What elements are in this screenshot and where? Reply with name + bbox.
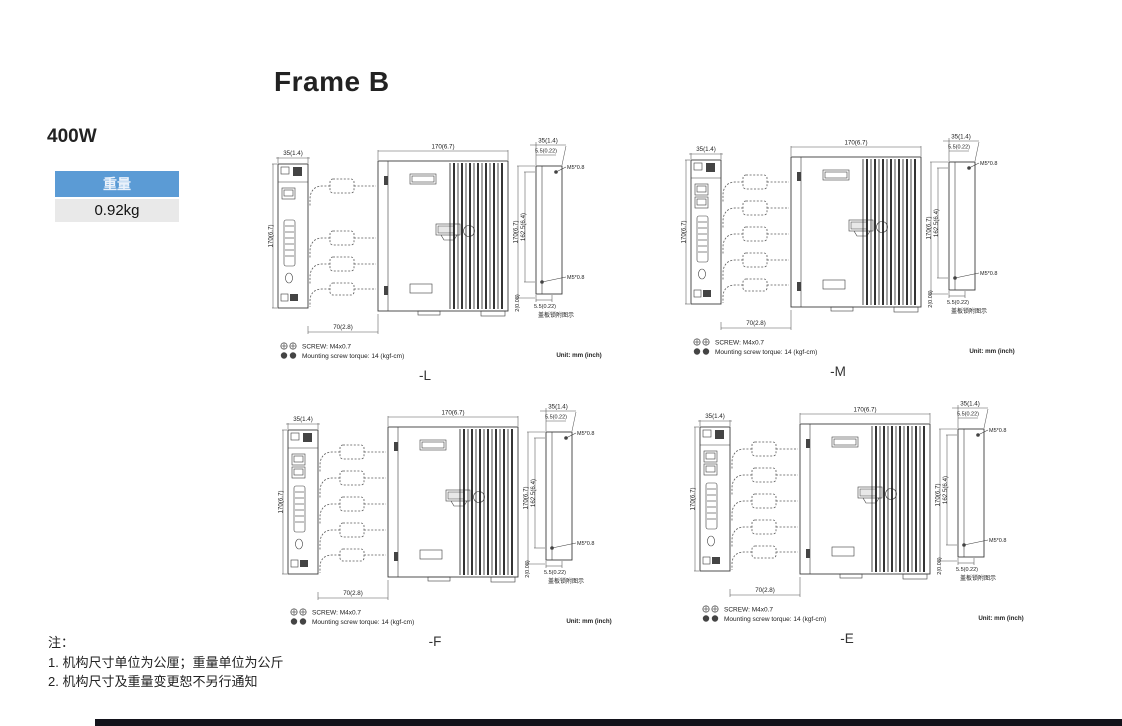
display-panel <box>858 487 897 503</box>
rear-height-label: 170(6.7) <box>935 483 942 506</box>
rear-bottom-offset-label: 5.5(0.22) <box>544 570 566 576</box>
side-depth-dimension: 170(6.7) <box>388 410 518 427</box>
front-height-dimension: 170(6.7) <box>690 427 699 571</box>
rear-height-dimension: 170(6.7) 162.5(6.4) <box>935 429 958 561</box>
note-2: 2. 机构尺寸及重量变更恕不另行通知 <box>48 673 283 692</box>
side-view <box>791 157 921 312</box>
cable-hook <box>320 471 386 499</box>
front-view <box>278 164 308 308</box>
front-view <box>288 430 318 574</box>
front-height-label: 170(6.7) <box>278 490 285 513</box>
cable-hook <box>310 283 376 307</box>
front-width-dimension: 35(1.4) <box>698 413 732 426</box>
screw-head-filled-icon <box>281 352 296 358</box>
drawing-panel-l: 35(1.4) 170(6.7) <box>268 136 618 386</box>
screw-head-icon <box>694 339 709 345</box>
variant-label: -F <box>429 634 442 649</box>
rear-height-dimension: 170(6.7) 162.5(6.4) <box>513 166 536 298</box>
cable-hook <box>320 523 386 551</box>
mounting-pitch-label: 162.5(6.4) <box>942 476 949 504</box>
side-depth-dimension: 170(6.7) <box>378 144 508 161</box>
cable-hook <box>723 201 789 229</box>
side-depth-label: 170(6.7) <box>431 144 454 151</box>
cable-clearance-label: 70(2.8) <box>343 590 363 597</box>
weight-table: 重量 0.92kg <box>55 171 179 222</box>
front-height-dimension: 170(6.7) <box>278 430 287 574</box>
side-depth-dimension: 170(6.7) <box>791 140 921 157</box>
screw-head-icon <box>291 609 306 615</box>
mounting-screw-label-bottom: M5*0.8 <box>577 541 594 547</box>
rear-bottom-gap-label: 2(0.08) <box>928 290 934 308</box>
front-height-dimension: 170(6.7) <box>681 160 690 304</box>
display-panel <box>849 220 888 236</box>
screw-head-filled-icon <box>291 618 306 624</box>
rear-view-caption: 盖板锁附图示 <box>960 574 996 582</box>
screw-head-icon <box>703 606 718 612</box>
rear-view-caption: 盖板锁附图示 <box>951 307 987 315</box>
rear-top-offset-label: 5.5(0.22) <box>545 415 567 421</box>
mounting-pitch-label: 162.5(6.4) <box>520 213 527 241</box>
front-height-label: 170(6.7) <box>681 220 688 243</box>
rear-top-offset-label: 5.5(0.22) <box>535 149 557 155</box>
mounting-pitch-label: 162.5(6.4) <box>933 209 940 237</box>
side-depth-dimension: 170(6.7) <box>800 407 930 424</box>
rear-height-label: 170(6.7) <box>926 216 933 239</box>
cable-connectors <box>723 175 789 303</box>
heatsink-fins <box>863 159 915 305</box>
mounting-screw-label-top: M5*0.8 <box>567 165 584 171</box>
cable-hook <box>723 279 789 303</box>
front-width-dimension: 35(1.4) <box>689 146 723 159</box>
dimension-drawing: 35(1.4) 170(6.7) <box>268 136 618 386</box>
unit-label: Unit: mm (inch) <box>969 348 1014 355</box>
display-panel <box>446 490 485 506</box>
cable-hook <box>320 549 386 573</box>
rear-height-dimension: 170(6.7) 162.5(6.4) <box>926 162 949 294</box>
screw-spec-label: SCREW: M4x0.7 <box>724 607 773 614</box>
mounting-screw-label-bottom: M5*0.8 <box>980 271 997 277</box>
rear-view: M5*0.8 M5*0.8 <box>958 428 1006 557</box>
display-panel <box>436 224 475 240</box>
rear-top-offset-label: 5.5(0.22) <box>957 412 979 418</box>
document-page: Frame B 400W 重量 0.92kg 35(1.4) 170(6.7) <box>0 0 1122 726</box>
unit-label: Unit: mm (inch) <box>978 615 1023 622</box>
cable-connectors <box>320 445 386 573</box>
cable-clearance-label: 70(2.8) <box>746 320 766 327</box>
mounting-screw-label-bottom: M5*0.8 <box>989 538 1006 544</box>
side-depth-label: 170(6.7) <box>844 140 867 147</box>
drawing-panel-e: 35(1.4) 170(6.7) <box>690 399 1040 649</box>
front-width-dimension: 35(1.4) <box>276 150 310 163</box>
weight-table-header: 重量 <box>55 171 179 199</box>
torque-spec-label: Mounting screw torque: 14 (kgf-cm) <box>715 349 817 356</box>
cable-hook <box>732 546 798 570</box>
drawing-panel-f: 35(1.4) 170(6.7) <box>278 402 628 652</box>
side-view <box>388 427 518 582</box>
cable-hook <box>310 257 376 285</box>
cable-hook <box>732 442 798 470</box>
unit-label: Unit: mm (inch) <box>566 618 611 625</box>
side-view <box>378 161 508 316</box>
front-width-dimension: 35(1.4) <box>286 416 320 429</box>
front-width-label: 35(1.4) <box>293 416 313 423</box>
screw-spec-label: SCREW: M4x0.7 <box>302 344 351 351</box>
cable-hook <box>723 253 789 281</box>
dimension-drawing: 35(1.4) 170(6.7) <box>681 132 1031 382</box>
side-depth-label: 170(6.7) <box>441 410 464 417</box>
cable-hook <box>310 179 376 207</box>
side-depth-label: 170(6.7) <box>853 407 876 414</box>
drawing-panel-m: 35(1.4) 170(6.7) <box>681 132 1031 382</box>
cable-clearance-label: 70(2.8) <box>333 324 353 331</box>
cable-clearance-label: 70(2.8) <box>755 587 775 594</box>
rear-view: M5*0.8 M5*0.8 <box>949 161 997 290</box>
heatsink-fins <box>450 163 502 309</box>
torque-spec-label: Mounting screw torque: 14 (kgf-cm) <box>302 353 404 360</box>
footnotes: 注： 1. 机构尺寸单位为公厘；重量单位为公斤 2. 机构尺寸及重量变更恕不另行… <box>48 634 283 692</box>
page-footer-bar <box>95 719 1122 726</box>
front-width-label: 35(1.4) <box>283 150 303 157</box>
cable-hook <box>320 497 386 525</box>
front-height-label: 170(6.7) <box>690 487 697 510</box>
mounting-screw-label-top: M5*0.8 <box>577 431 594 437</box>
rear-view: M5*0.8 M5*0.8 <box>536 165 584 294</box>
side-view <box>800 424 930 579</box>
front-width-label: 35(1.4) <box>705 413 725 420</box>
notes-label: 注： <box>48 634 283 653</box>
rear-view-caption: 盖板锁附图示 <box>548 577 584 585</box>
variant-label: -M <box>830 364 846 379</box>
rear-view-caption: 盖板锁附图示 <box>538 311 574 319</box>
rear-width-dimension: 35(1.4) 5.5(0.22) <box>943 134 979 162</box>
cable-clearance-dimension: 70(2.8) <box>308 314 378 334</box>
screw-head-filled-icon <box>703 615 718 621</box>
heatsink-fins <box>872 426 924 572</box>
screw-notes: SCREW: M4x0.7 Mounting screw torque: 14 … <box>694 339 817 356</box>
rear-width-label: 35(1.4) <box>951 134 971 141</box>
cable-connectors <box>310 179 376 307</box>
rear-width-dimension: 35(1.4) 5.5(0.22) <box>540 404 576 432</box>
cable-connectors <box>732 442 798 570</box>
rear-width-label: 35(1.4) <box>960 401 980 408</box>
cable-clearance-dimension: 70(2.8) <box>318 580 388 600</box>
cable-clearance-dimension: 70(2.8) <box>730 577 800 597</box>
power-rating: 400W <box>47 126 97 148</box>
weight-table-value: 0.92kg <box>55 199 179 222</box>
page-title: Frame B <box>274 66 390 98</box>
screw-spec-label: SCREW: M4x0.7 <box>312 610 361 617</box>
cable-hook <box>732 520 798 548</box>
unit-label: Unit: mm (inch) <box>556 352 601 359</box>
note-1: 1. 机构尺寸单位为公厘；重量单位为公斤 <box>48 654 283 673</box>
cable-hook <box>310 231 376 259</box>
variant-label: -L <box>419 368 431 383</box>
rear-bottom-offset-label: 5.5(0.22) <box>956 567 978 573</box>
cable-hook <box>320 445 386 473</box>
mounting-screw-label-top: M5*0.8 <box>989 428 1006 434</box>
front-width-label: 35(1.4) <box>696 146 716 153</box>
rear-bottom-offset-label: 5.5(0.22) <box>947 300 969 306</box>
screw-head-filled-icon <box>694 348 709 354</box>
screw-head-icon <box>281 343 296 349</box>
rear-width-dimension: 35(1.4) 5.5(0.22) <box>530 138 566 166</box>
heatsink-fins <box>460 429 512 575</box>
screw-spec-label: SCREW: M4x0.7 <box>715 340 764 347</box>
rear-width-dimension: 35(1.4) 5.5(0.22) <box>952 401 988 429</box>
cable-hook <box>732 494 798 522</box>
front-height-label: 170(6.7) <box>268 224 275 247</box>
rear-height-label: 170(6.7) <box>523 486 530 509</box>
rear-bottom-gap-label: 2(0.08) <box>525 560 531 578</box>
front-view <box>691 160 721 304</box>
mounting-pitch-label: 162.5(6.4) <box>530 479 537 507</box>
torque-spec-label: Mounting screw torque: 14 (kgf-cm) <box>312 619 414 626</box>
variant-label: -E <box>840 631 854 646</box>
mounting-screw-label-bottom: M5*0.8 <box>567 275 584 281</box>
rear-height-dimension: 170(6.7) 162.5(6.4) <box>523 432 546 564</box>
rear-top-offset-label: 5.5(0.22) <box>948 145 970 151</box>
cable-hook <box>723 227 789 255</box>
screw-notes: SCREW: M4x0.7 Mounting screw torque: 14 … <box>281 343 404 360</box>
rear-width-label: 35(1.4) <box>538 138 558 145</box>
rear-width-label: 35(1.4) <box>548 404 568 411</box>
rear-height-label: 170(6.7) <box>513 220 520 243</box>
rear-bottom-offset-label: 5.5(0.22) <box>534 304 556 310</box>
front-height-dimension: 170(6.7) <box>268 164 277 308</box>
mounting-screw-label-top: M5*0.8 <box>980 161 997 167</box>
cable-hook <box>723 175 789 203</box>
screw-notes: SCREW: M4x0.7 Mounting screw torque: 14 … <box>703 606 826 623</box>
dimension-drawing: 35(1.4) 170(6.7) <box>690 399 1040 649</box>
rear-view: M5*0.8 M5*0.8 <box>546 431 594 560</box>
cable-hook <box>732 468 798 496</box>
cable-clearance-dimension: 70(2.8) <box>721 310 791 330</box>
rear-bottom-gap-label: 2(0.08) <box>515 294 521 312</box>
screw-notes: SCREW: M4x0.7 Mounting screw torque: 14 … <box>291 609 414 626</box>
front-view <box>700 427 730 571</box>
dimension-drawing: 35(1.4) 170(6.7) <box>278 402 628 652</box>
torque-spec-label: Mounting screw torque: 14 (kgf-cm) <box>724 616 826 623</box>
rear-bottom-gap-label: 2(0.08) <box>937 557 943 575</box>
